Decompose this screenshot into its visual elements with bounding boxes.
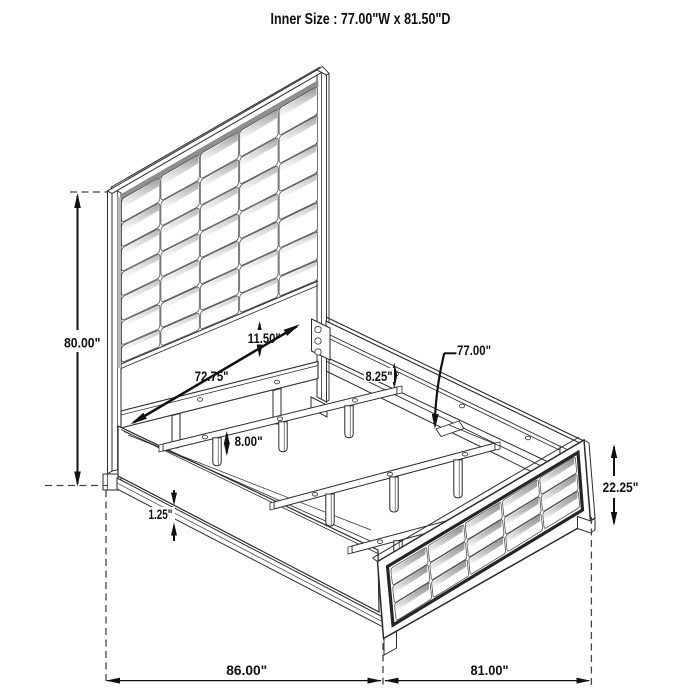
svg-text:Inner Size : 77.00"W x 81.50"D: Inner Size : 77.00"W x 81.50"D — [271, 11, 451, 28]
svg-text:8.25": 8.25" — [366, 368, 393, 384]
svg-text:81.00": 81.00" — [471, 662, 509, 678]
svg-text:86.00": 86.00" — [226, 662, 267, 678]
svg-text:22.25": 22.25" — [603, 479, 639, 495]
svg-text:77.00": 77.00" — [457, 342, 491, 358]
svg-text:8.00": 8.00" — [235, 433, 263, 449]
svg-text:72.75": 72.75" — [195, 368, 229, 384]
svg-text:1.25": 1.25" — [149, 506, 173, 522]
svg-text:80.00": 80.00" — [64, 335, 101, 351]
